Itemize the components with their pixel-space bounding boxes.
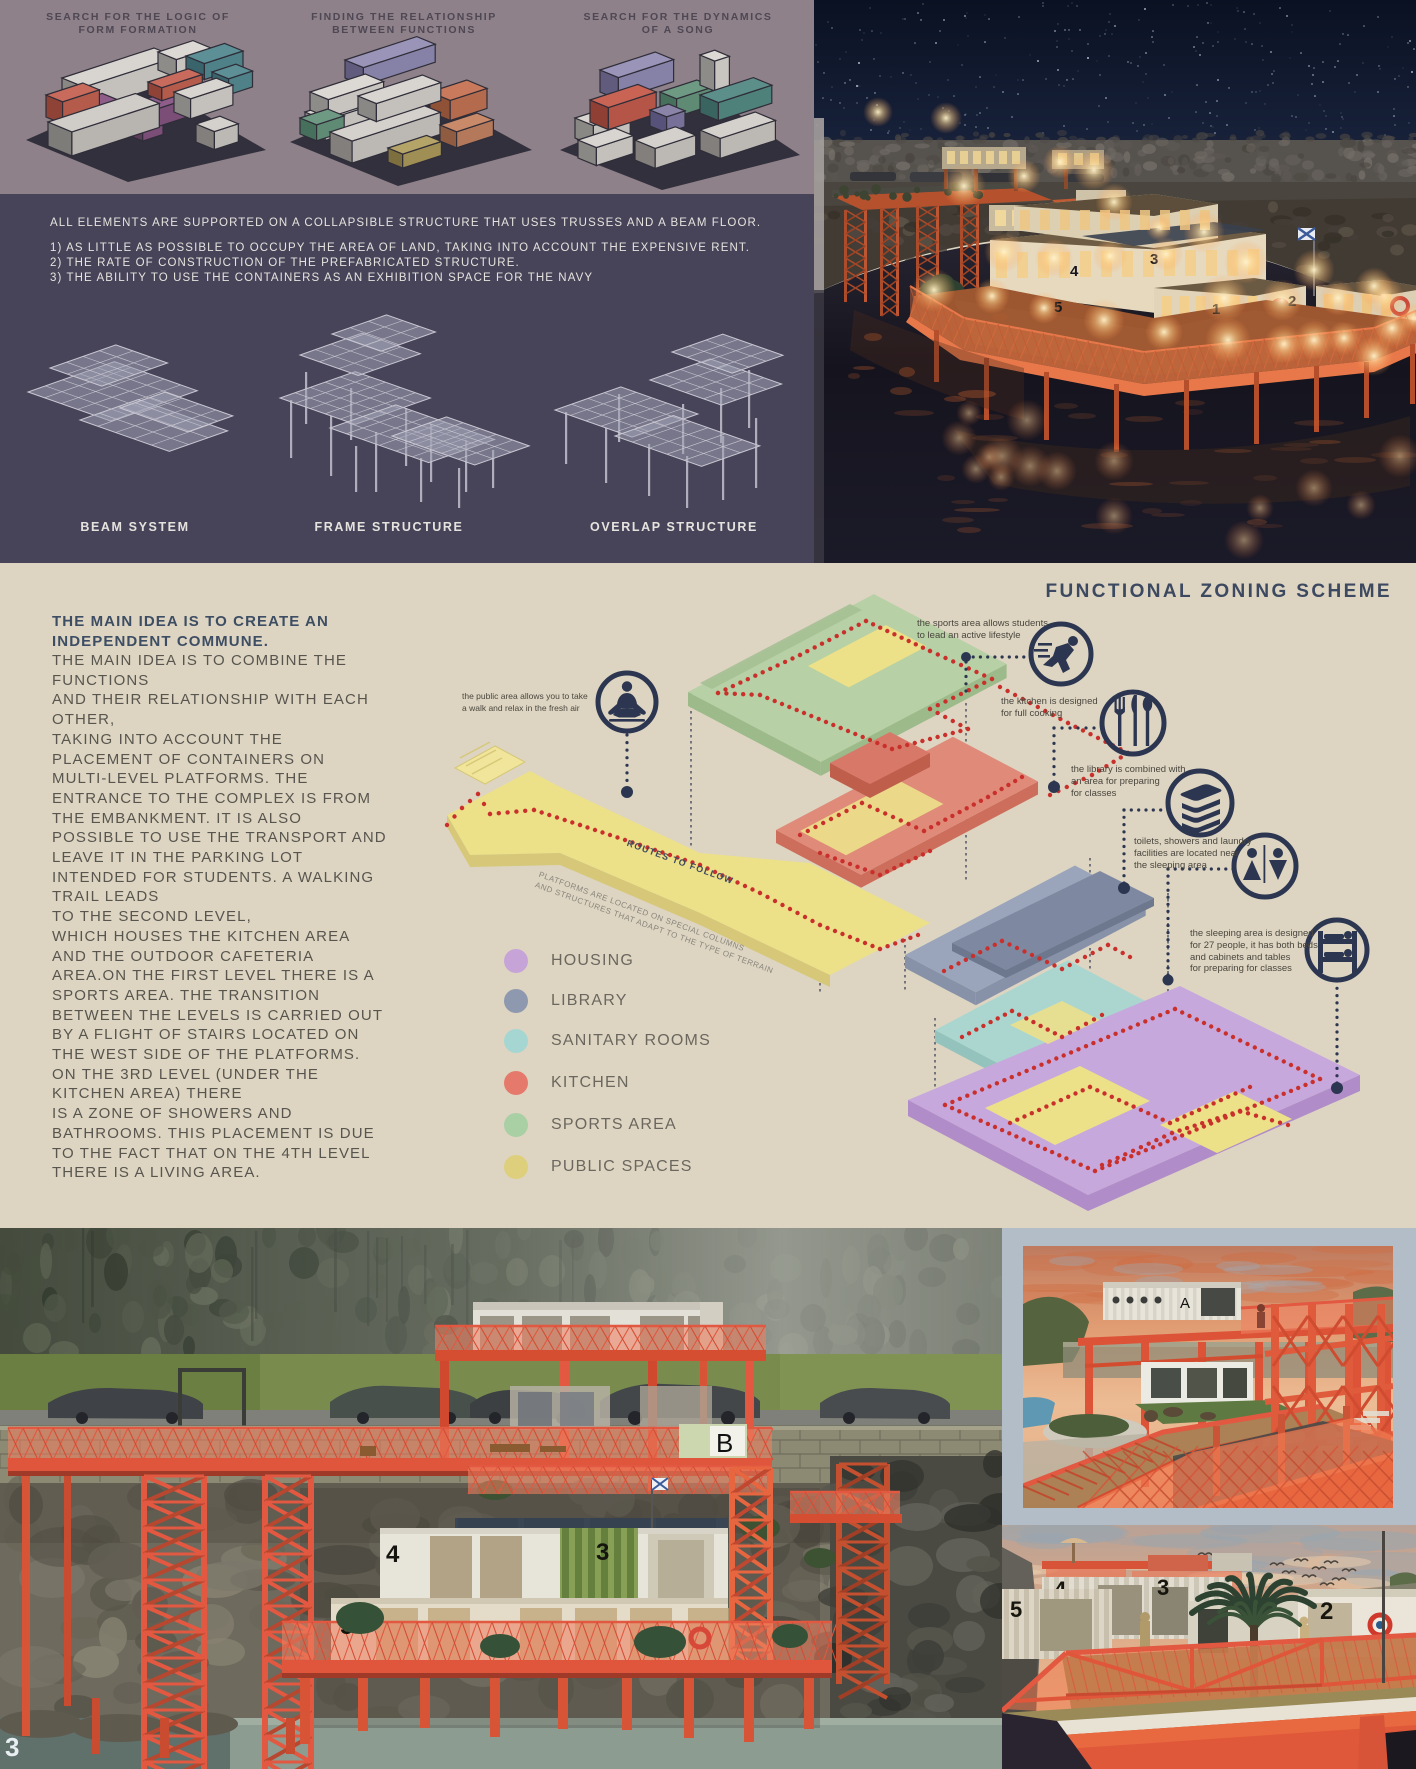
- svg-text:A: A: [1180, 1295, 1190, 1312]
- svg-text:B: B: [716, 1428, 733, 1458]
- svg-text:3: 3: [596, 1539, 609, 1566]
- svg-text:3: 3: [1157, 1575, 1169, 1600]
- svg-text:4: 4: [386, 1541, 400, 1568]
- svg-text:5: 5: [1010, 1597, 1022, 1622]
- svg-text:2: 2: [1320, 1598, 1333, 1625]
